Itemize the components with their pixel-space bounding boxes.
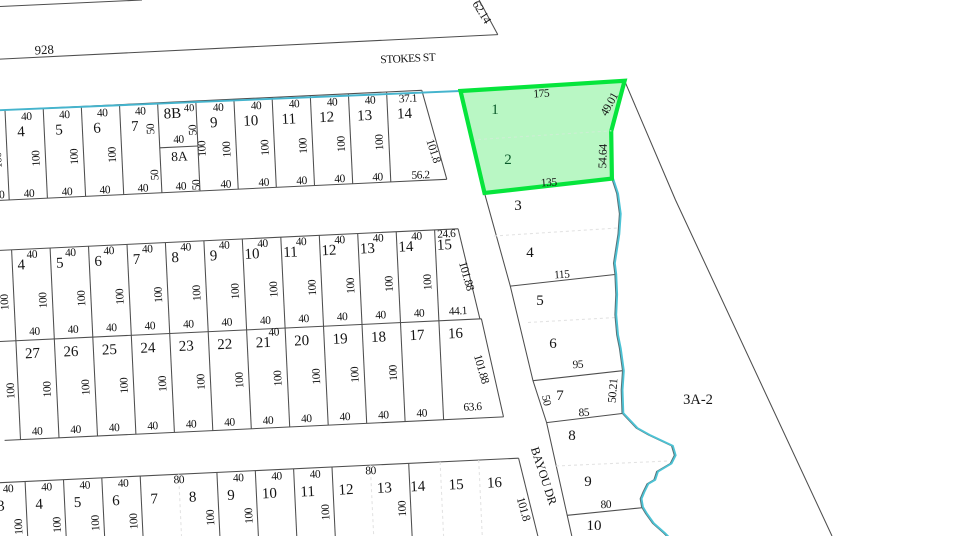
svg-text:27: 27	[25, 346, 41, 363]
svg-text:9: 9	[210, 115, 218, 131]
svg-text:40: 40	[61, 186, 73, 199]
svg-text:40: 40	[142, 243, 154, 256]
svg-text:100: 100	[153, 286, 166, 303]
svg-text:40: 40	[337, 311, 349, 324]
svg-text:24.6: 24.6	[437, 228, 456, 241]
svg-text:56.2: 56.2	[411, 169, 430, 182]
svg-text:100: 100	[106, 146, 119, 163]
svg-text:5: 5	[73, 495, 81, 511]
svg-text:40: 40	[99, 184, 111, 197]
svg-text:22: 22	[217, 337, 233, 354]
svg-text:100: 100	[76, 290, 89, 307]
svg-text:100: 100	[272, 370, 285, 387]
svg-text:40: 40	[184, 103, 195, 114]
svg-text:100: 100	[259, 139, 272, 156]
svg-text:40: 40	[219, 240, 231, 253]
svg-text:8: 8	[171, 250, 179, 266]
svg-text:40: 40	[29, 326, 41, 339]
svg-text:40: 40	[258, 177, 270, 190]
svg-text:3: 3	[514, 198, 522, 214]
svg-text:40: 40	[67, 324, 79, 337]
svg-text:54.64: 54.64	[595, 143, 610, 168]
svg-text:40: 40	[296, 175, 308, 188]
svg-text:6: 6	[93, 121, 102, 137]
svg-text:40: 40	[298, 313, 310, 326]
svg-text:100: 100	[383, 275, 396, 292]
svg-text:100: 100	[320, 503, 333, 520]
svg-text:4: 4	[17, 124, 26, 140]
svg-text:50: 50	[145, 123, 158, 135]
svg-text:5: 5	[536, 293, 544, 309]
svg-text:11: 11	[300, 484, 315, 501]
svg-text:135: 135	[541, 176, 558, 189]
svg-text:40: 40	[109, 422, 121, 435]
svg-text:100: 100	[51, 516, 64, 533]
svg-text:8B: 8B	[163, 106, 181, 123]
svg-text:50: 50	[190, 179, 203, 191]
svg-text:100: 100	[128, 512, 141, 529]
svg-text:40: 40	[257, 238, 269, 251]
svg-text:40: 40	[213, 102, 225, 115]
svg-text:7: 7	[150, 491, 159, 507]
svg-text:40: 40	[416, 407, 428, 420]
svg-text:63.6: 63.6	[463, 401, 482, 414]
svg-text:40: 40	[364, 95, 376, 108]
svg-text:50: 50	[187, 124, 200, 136]
svg-text:40: 40	[262, 415, 274, 428]
svg-text:100: 100	[221, 141, 234, 158]
svg-text:100: 100	[374, 133, 387, 150]
svg-text:9: 9	[584, 474, 592, 490]
svg-text:100: 100	[191, 284, 204, 301]
svg-text:16: 16	[448, 326, 464, 343]
svg-text:100: 100	[0, 151, 5, 168]
svg-text:40: 40	[233, 472, 245, 485]
svg-text:40: 40	[103, 245, 115, 258]
svg-text:80: 80	[365, 465, 377, 478]
svg-text:5: 5	[55, 122, 63, 138]
svg-text:40: 40	[224, 417, 236, 430]
svg-text:4: 4	[35, 497, 44, 513]
svg-text:15: 15	[448, 477, 464, 494]
svg-text:40: 40	[118, 478, 130, 491]
svg-text:40: 40	[289, 98, 301, 111]
svg-text:40: 40	[221, 317, 233, 330]
svg-text:50: 50	[149, 169, 162, 181]
svg-text:100: 100	[234, 371, 247, 388]
svg-text:18: 18	[371, 329, 387, 346]
svg-text:80: 80	[600, 499, 612, 512]
svg-text:7: 7	[556, 388, 564, 404]
svg-text:40: 40	[327, 96, 339, 109]
svg-text:100: 100	[90, 514, 103, 531]
svg-text:40: 40	[41, 481, 53, 494]
svg-text:25: 25	[102, 342, 118, 359]
svg-text:23: 23	[178, 338, 194, 355]
svg-text:100: 100	[297, 137, 310, 154]
svg-text:100: 100	[114, 288, 127, 305]
svg-text:40: 40	[220, 178, 232, 191]
svg-text:100: 100	[205, 509, 218, 526]
svg-text:2: 2	[504, 152, 512, 168]
svg-text:40: 40	[147, 420, 159, 433]
svg-text:40: 40	[180, 241, 192, 254]
svg-text:12: 12	[338, 482, 354, 499]
svg-text:40: 40	[296, 236, 308, 249]
svg-text:100: 100	[5, 382, 18, 399]
svg-text:40: 40	[65, 247, 77, 260]
svg-text:10: 10	[243, 113, 259, 130]
svg-text:40: 40	[271, 470, 283, 483]
svg-text:17: 17	[409, 327, 425, 344]
svg-text:3A-2: 3A-2	[683, 392, 713, 408]
svg-text:8: 8	[568, 428, 576, 444]
svg-text:100: 100	[80, 379, 93, 396]
svg-text:100: 100	[157, 375, 170, 392]
svg-text:100: 100	[387, 364, 400, 381]
svg-text:40: 40	[375, 309, 387, 322]
svg-text:40: 40	[309, 469, 321, 482]
svg-text:40: 40	[32, 426, 44, 439]
svg-text:40: 40	[59, 109, 71, 122]
svg-text:40: 40	[70, 424, 82, 437]
svg-text:85: 85	[578, 407, 590, 420]
svg-text:40: 40	[334, 173, 346, 186]
svg-text:100: 100	[229, 282, 242, 299]
svg-text:40: 40	[268, 326, 280, 339]
svg-text:100: 100	[306, 279, 319, 296]
svg-text:4: 4	[526, 245, 534, 261]
svg-text:24: 24	[140, 340, 156, 357]
svg-text:40: 40	[372, 232, 384, 245]
svg-text:4: 4	[17, 257, 26, 273]
svg-text:40: 40	[175, 181, 187, 194]
svg-text:6: 6	[112, 493, 121, 509]
svg-text:40: 40	[26, 249, 38, 262]
svg-text:50.21: 50.21	[605, 378, 621, 404]
svg-text:100: 100	[196, 140, 209, 157]
svg-text:80: 80	[173, 474, 185, 487]
svg-text:40: 40	[339, 411, 351, 424]
svg-text:100: 100	[68, 148, 81, 165]
svg-text:40: 40	[137, 182, 149, 195]
svg-text:44.1: 44.1	[449, 305, 468, 318]
svg-text:40: 40	[23, 188, 35, 201]
svg-text:100: 100	[243, 507, 256, 524]
svg-text:40: 40	[372, 171, 384, 184]
svg-text:9: 9	[227, 488, 235, 504]
svg-text:40: 40	[173, 134, 185, 147]
svg-text:37.1: 37.1	[399, 93, 418, 106]
svg-text:19: 19	[332, 331, 348, 348]
svg-text:40: 40	[411, 231, 423, 244]
svg-text:115: 115	[554, 268, 571, 281]
svg-text:13: 13	[357, 108, 373, 125]
svg-text:13: 13	[377, 480, 393, 497]
svg-text:100: 100	[118, 377, 131, 394]
svg-text:40: 40	[334, 234, 346, 247]
svg-text:100: 100	[30, 150, 43, 167]
svg-text:6: 6	[549, 336, 557, 352]
svg-text:14: 14	[410, 479, 426, 496]
svg-text:5: 5	[56, 255, 64, 271]
svg-text:100: 100	[13, 518, 26, 535]
svg-text:100: 100	[345, 277, 358, 294]
svg-text:40: 40	[106, 322, 118, 335]
svg-text:100: 100	[195, 373, 208, 390]
svg-text:100: 100	[37, 292, 50, 309]
svg-text:40: 40	[183, 318, 195, 331]
svg-text:1: 1	[491, 102, 499, 118]
svg-text:100: 100	[268, 281, 281, 298]
svg-text:16: 16	[487, 475, 503, 492]
svg-text:6: 6	[94, 254, 103, 270]
svg-text:928: 928	[34, 43, 54, 58]
svg-text:40: 40	[135, 105, 147, 118]
svg-text:26: 26	[63, 344, 79, 361]
svg-text:12: 12	[319, 109, 335, 126]
svg-text:100: 100	[41, 380, 54, 397]
svg-text:100: 100	[0, 293, 11, 310]
svg-text:100: 100	[335, 135, 348, 152]
svg-text:100: 100	[349, 366, 362, 383]
svg-text:14: 14	[397, 106, 413, 123]
svg-text:40: 40	[3, 483, 15, 496]
svg-text:40: 40	[378, 409, 390, 422]
svg-text:9: 9	[209, 248, 217, 264]
svg-text:40: 40	[97, 107, 109, 120]
svg-text:7: 7	[133, 252, 142, 268]
svg-text:40: 40	[251, 100, 263, 113]
svg-text:20: 20	[294, 333, 310, 350]
svg-text:100: 100	[422, 273, 435, 290]
svg-text:7: 7	[131, 119, 140, 135]
svg-text:10: 10	[587, 518, 602, 534]
svg-text:40: 40	[79, 479, 91, 492]
svg-text:8: 8	[189, 489, 197, 505]
svg-text:3: 3	[0, 498, 5, 514]
svg-text:40: 40	[21, 111, 33, 124]
svg-text:10: 10	[262, 486, 278, 503]
svg-text:40: 40	[260, 315, 272, 328]
svg-text:40: 40	[186, 418, 198, 431]
svg-text:95: 95	[572, 359, 584, 372]
svg-text:8A: 8A	[171, 148, 188, 164]
svg-text:100: 100	[311, 368, 324, 385]
svg-text:100: 100	[396, 500, 409, 517]
svg-text:175: 175	[533, 87, 550, 100]
svg-text:40: 40	[144, 320, 156, 333]
svg-text:40: 40	[301, 413, 313, 426]
svg-text:11: 11	[281, 111, 296, 128]
svg-text:40: 40	[414, 307, 426, 320]
